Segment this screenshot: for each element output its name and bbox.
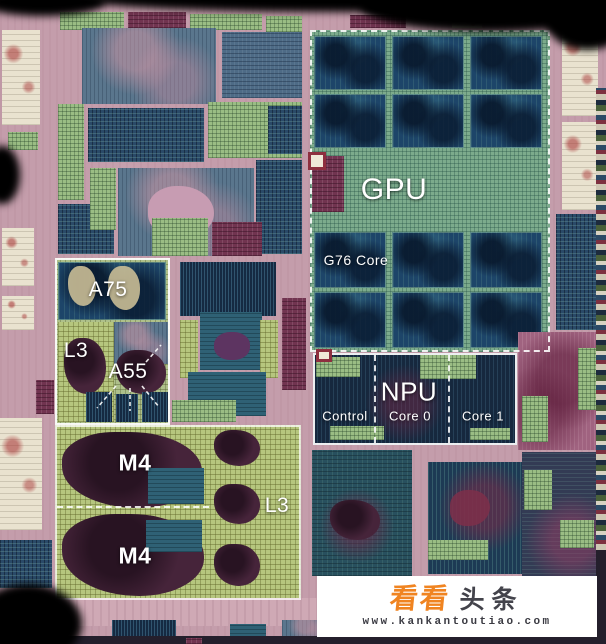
die-block xyxy=(392,232,464,288)
die-block xyxy=(186,638,202,644)
label-g76-core: G76 Core xyxy=(324,252,389,268)
die-block xyxy=(212,222,262,256)
die-block xyxy=(0,418,42,530)
die-block xyxy=(350,15,406,28)
label-npu-core0: Core 0 xyxy=(389,409,431,424)
die-block xyxy=(82,28,216,104)
die-block xyxy=(330,500,380,540)
die-block xyxy=(268,106,302,154)
die-block xyxy=(470,232,542,288)
die-block xyxy=(180,262,276,316)
die-block xyxy=(2,296,34,330)
die-block xyxy=(392,292,464,348)
die-block xyxy=(452,18,482,28)
label-npu-control: Control xyxy=(322,409,367,424)
die-block xyxy=(392,94,464,148)
die-block xyxy=(36,380,54,414)
npu-separator-control-core0 xyxy=(374,355,376,443)
die-block xyxy=(256,160,302,254)
die-block xyxy=(222,32,302,98)
watermark-brand: 看看 头条 xyxy=(390,585,523,613)
watermark-url: www.kankantoutiao.com xyxy=(362,616,551,628)
die-block xyxy=(128,12,186,28)
die-block xyxy=(562,122,598,210)
die-photo: GPU G76 Core NPU Control Core 0 Core 1 A… xyxy=(0,0,606,644)
die-block xyxy=(470,94,542,148)
die-block xyxy=(282,298,306,390)
label-m4-top: M4 xyxy=(119,450,152,477)
die-block xyxy=(88,108,204,162)
npu-separator-core0-core1 xyxy=(448,355,450,443)
die-block xyxy=(60,636,606,644)
label-a75: A75 xyxy=(89,278,128,302)
die-block xyxy=(2,30,40,125)
die-mark-npu xyxy=(316,349,332,362)
label-npu-core1: Core 1 xyxy=(462,409,504,424)
die-block xyxy=(596,550,606,644)
die-block xyxy=(470,428,510,440)
vignette-top xyxy=(80,0,606,12)
die-block xyxy=(470,36,542,90)
die-block xyxy=(214,484,260,524)
die-block xyxy=(522,396,548,442)
label-m4-bottom: M4 xyxy=(119,543,152,570)
die-block xyxy=(58,104,84,200)
die-block xyxy=(180,320,198,378)
die-block xyxy=(392,36,464,90)
die-block xyxy=(116,394,138,422)
die-block xyxy=(8,132,38,150)
die-block xyxy=(146,520,202,552)
die-block xyxy=(214,430,260,466)
label-l3-m4: L3 xyxy=(265,494,289,518)
die-block xyxy=(152,218,208,256)
vignette-left xyxy=(0,146,20,204)
die-block xyxy=(560,520,594,548)
die-block xyxy=(90,168,116,230)
watermark-brand-second: 头条 xyxy=(460,588,524,613)
die-block xyxy=(314,292,386,348)
label-npu: NPU xyxy=(381,377,437,408)
die-block xyxy=(214,544,260,586)
watermark-brand-first: 看看 xyxy=(389,585,452,613)
die-block xyxy=(428,540,488,560)
die-block xyxy=(214,332,250,360)
die-block xyxy=(172,400,236,422)
die-block xyxy=(314,36,386,90)
die-block xyxy=(314,94,386,148)
label-a55: A55 xyxy=(109,360,148,384)
die-block xyxy=(148,468,204,504)
die-block xyxy=(524,470,552,510)
die-block xyxy=(562,24,598,116)
die-block xyxy=(0,540,52,588)
die-block xyxy=(86,392,112,422)
label-gpu: GPU xyxy=(361,173,428,207)
die-block xyxy=(260,320,278,378)
die-block xyxy=(142,392,168,422)
m4-core-divider xyxy=(57,506,209,508)
die-mark-gpu xyxy=(308,152,326,170)
die-block xyxy=(596,88,606,550)
watermark-box: 看看 头条 www.kankantoutiao.com xyxy=(317,576,597,637)
die-block xyxy=(2,228,34,286)
label-l3-cluster: L3 xyxy=(64,339,88,363)
